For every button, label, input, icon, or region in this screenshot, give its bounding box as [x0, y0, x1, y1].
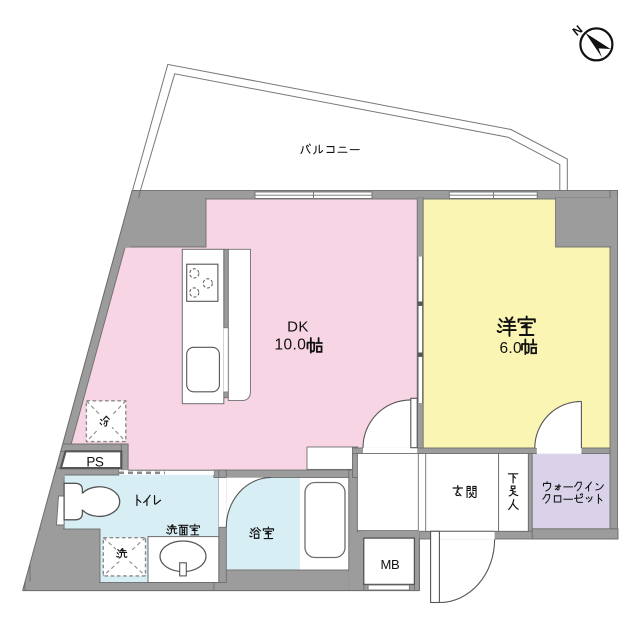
svg-text:DK: DK: [287, 318, 309, 335]
svg-text:10.0: 10.0: [275, 336, 307, 353]
svg-text:PS: PS: [86, 455, 104, 470]
svg-text:6.0: 6.0: [500, 340, 523, 357]
svg-text:MB: MB: [380, 557, 399, 572]
